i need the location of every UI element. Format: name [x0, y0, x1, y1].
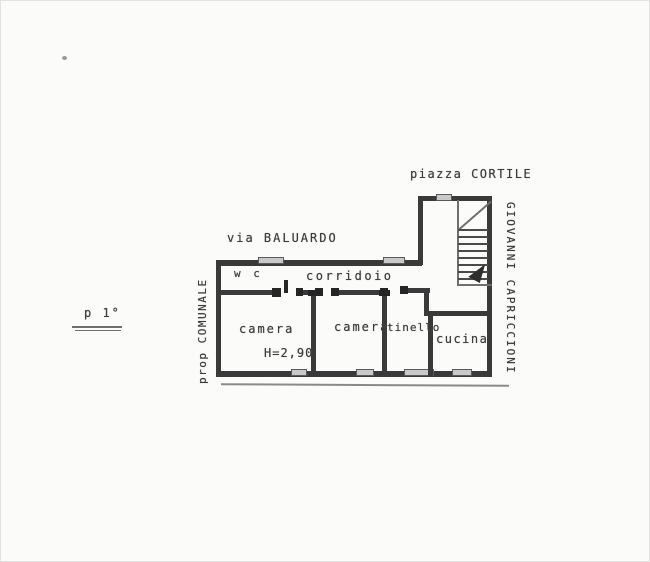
window-bottom-2	[356, 369, 374, 376]
stair-tread	[458, 236, 488, 238]
room-label-bedroom2: camera	[334, 320, 389, 334]
door-jamb-tinello-right	[400, 286, 408, 294]
street-baseline	[221, 383, 509, 387]
stair-tread	[458, 229, 488, 231]
stair-tread	[458, 257, 488, 259]
floor-level-label: p 1°	[84, 306, 121, 320]
window-bottom-1	[291, 369, 307, 376]
room-label-wc: w c	[234, 267, 263, 280]
stair-tread	[458, 250, 488, 252]
window-bottom-4	[452, 369, 472, 376]
wall-wc-bottom	[216, 290, 278, 295]
wall-divider-camera2-tinello	[382, 293, 387, 377]
room-label-bedroom1: camera	[239, 322, 294, 336]
scan-speck	[62, 56, 67, 60]
window-stair-top	[436, 194, 452, 201]
stair-bottom-line	[457, 284, 492, 286]
room-label-kitchen: cucina	[436, 332, 488, 346]
wall-kitchen-top	[424, 311, 492, 316]
stair-tread	[458, 243, 488, 245]
room-label-corridor: corridoio	[306, 269, 394, 283]
window-top-2	[383, 257, 405, 264]
floor-label-underline	[72, 326, 122, 328]
ceiling-height-label: H=2,90	[264, 346, 313, 360]
door-leaf-wc	[284, 280, 288, 293]
top-street-label: via BALUARDO	[227, 231, 338, 245]
wall-divider-camera1-camera2	[311, 293, 316, 377]
door-jamb-wc	[272, 288, 281, 297]
floor-label-underline-2	[75, 330, 121, 331]
wall-corridor-seg-2	[335, 290, 385, 295]
wall-cap-divider-1	[308, 290, 319, 296]
room-label-dining: tinello	[387, 321, 440, 334]
wall-cap-divider-2	[379, 290, 390, 296]
door-jamb-camera1	[296, 288, 303, 296]
wall-stair-left-exterior	[418, 197, 423, 265]
left-property-label: prop COMUNALE	[196, 254, 209, 384]
wall-left-exterior	[216, 260, 221, 377]
wall-stair-top-exterior	[418, 196, 492, 201]
door-jamb-camera2-right	[331, 288, 339, 296]
scanned-floor-plan-page: p 1° prop COMUNALE via BALUARDO piazza C…	[0, 0, 650, 562]
window-top-1	[258, 257, 284, 264]
piazza-label: piazza CORTILE	[410, 167, 532, 181]
wall-right-exterior	[487, 196, 492, 377]
right-owner-label: GIOVANNI CAPRICCIONI	[504, 202, 517, 402]
wall-bottom-exterior	[216, 371, 492, 377]
